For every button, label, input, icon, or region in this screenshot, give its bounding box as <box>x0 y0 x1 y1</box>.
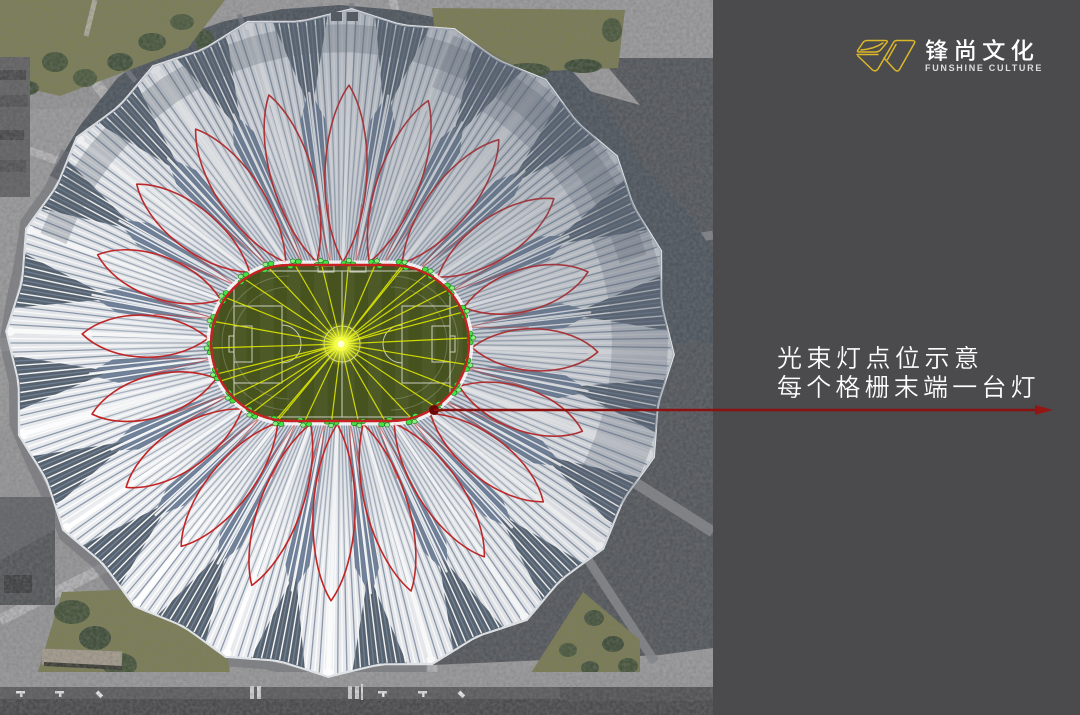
svg-text:FUNSHINE CULTURE: FUNSHINE CULTURE <box>925 63 1043 73</box>
